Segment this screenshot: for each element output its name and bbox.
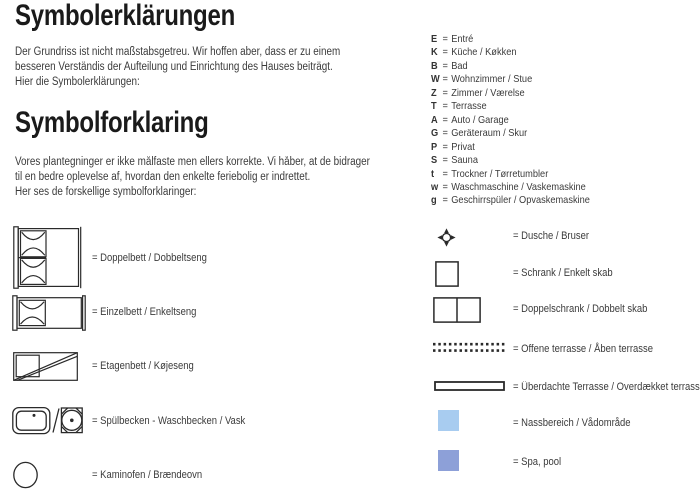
room-code-key: E — [431, 33, 442, 46]
legend-label: = Spa, pool — [513, 456, 561, 468]
text-line: til en bedre oplevelse af, hvordan den e… — [15, 170, 370, 185]
bunk-bed-icon — [13, 352, 78, 381]
cabinet-icon — [435, 261, 459, 287]
room-code-value: Bad — [451, 60, 467, 73]
room-code-row: P=Privat — [431, 141, 590, 154]
room-code-key: t — [431, 168, 442, 181]
legend-label: = Doppelschrank / Dobbelt skab — [513, 303, 647, 315]
open-terrace-icon — [433, 342, 505, 354]
equals-sign: = — [442, 141, 451, 154]
covered-terrace-icon — [434, 381, 505, 391]
wet-area-swatch — [438, 410, 459, 431]
room-code-key: w — [431, 181, 442, 194]
spa-pool-swatch — [438, 450, 459, 471]
legend-label: = Offene terrasse / Åben terrasse — [513, 343, 653, 355]
room-code-key: g — [431, 194, 442, 207]
page-title-danish: Symbolforklaring — [15, 106, 209, 140]
room-code-list: E=Entré K=Küche / Køkken B=Bad W=Wohnzim… — [431, 33, 612, 208]
room-code-key: G — [431, 127, 442, 140]
room-code-value: Küche / Køkken — [451, 46, 516, 59]
room-code-value: Sauna — [451, 154, 478, 167]
text-line: Hier die Symbolerklärungen: — [15, 75, 340, 90]
legend-label: = Nassbereich / Vådområde — [513, 417, 631, 429]
page-title-german: Symbolerklärungen — [15, 0, 235, 33]
room-code-key: W — [431, 73, 442, 86]
legend-page: Symbolerklärungen Der Grundriss ist nich… — [0, 0, 700, 500]
wood-stove-icon — [12, 461, 39, 489]
equals-sign: = — [442, 46, 451, 59]
room-code-key: K — [431, 46, 442, 59]
equals-sign: = — [442, 87, 451, 100]
room-code-key: A — [431, 114, 442, 127]
room-code-row: Z=Zimmer / Værelse — [431, 87, 590, 100]
room-code-key: B — [431, 60, 442, 73]
room-code-key: P — [431, 141, 442, 154]
room-code-row: E=Entré — [431, 33, 590, 46]
room-code-value: Auto / Garage — [451, 114, 509, 127]
legend-label: = Kaminofen / Brændeovn — [92, 469, 202, 481]
room-code-key: S — [431, 154, 442, 167]
double-cabinet-icon — [433, 297, 481, 323]
room-code-row: S=Sauna — [431, 154, 590, 167]
legend-label: = Etagenbett / Køjeseng — [92, 360, 194, 372]
room-code-value: Wohnzimmer / Stue — [451, 73, 532, 86]
equals-sign: = — [442, 154, 451, 167]
room-code-row: A=Auto / Garage — [431, 114, 590, 127]
double-bed-icon — [13, 226, 83, 289]
text-line: Vores plantegninger er ikke målfaste men… — [15, 155, 370, 170]
legend-label: = Dusche / Bruser — [513, 230, 589, 242]
legend-label: = Überdachte Terrasse / Overdækket terra… — [513, 381, 700, 393]
room-code-row: t=Trockner / Tørretumbler — [431, 168, 590, 181]
sink-washbasin-icon — [12, 406, 83, 435]
legend-label: = Spülbecken - Waschbecken / Vask — [92, 415, 245, 427]
room-code-row: W=Wohnzimmer / Stue — [431, 73, 590, 86]
equals-sign: = — [442, 168, 451, 181]
equals-sign: = — [442, 181, 451, 194]
equals-sign: = — [442, 127, 451, 140]
room-code-value: Entré — [451, 33, 473, 46]
text-line: Her ses de forskellige symbolforklaringe… — [15, 185, 370, 200]
single-bed-icon — [12, 295, 86, 331]
legend-label: = Doppelbett / Dobbeltseng — [92, 252, 207, 264]
equals-sign: = — [442, 114, 451, 127]
room-code-key: T — [431, 100, 442, 113]
legend-label: = Einzelbett / Enkeltseng — [92, 306, 196, 318]
equals-sign: = — [442, 194, 451, 207]
room-code-value: Waschmaschine / Vaskemaskine — [451, 181, 586, 194]
room-code-value: Trockner / Tørretumbler — [451, 168, 548, 181]
room-code-row: K=Küche / Køkken — [431, 46, 590, 59]
text-line: Der Grundriss ist nicht maßstabsgetreu. … — [15, 45, 340, 60]
room-code-key: Z — [431, 87, 442, 100]
text-line: besseren Verständis der Aufteilung und E… — [15, 60, 340, 75]
equals-sign: = — [442, 73, 451, 86]
room-code-value: Zimmer / Værelse — [451, 87, 524, 100]
equals-sign: = — [442, 60, 451, 73]
room-code-value: Geräteraum / Skur — [451, 127, 527, 140]
equals-sign: = — [442, 33, 451, 46]
room-code-row: T=Terrasse — [431, 100, 590, 113]
room-code-value: Privat — [451, 141, 475, 154]
room-code-value: Geschirrspüler / Opvaskemaskine — [451, 194, 590, 207]
intro-text-german: Der Grundriss ist nicht maßstabsgetreu. … — [15, 45, 393, 91]
room-code-row: G=Geräteraum / Skur — [431, 127, 590, 140]
room-code-row: g=Geschirrspüler / Opvaskemaskine — [431, 194, 590, 207]
room-code-row: w=Waschmaschine / Vaskemaskine — [431, 181, 590, 194]
room-code-value: Terrasse — [451, 100, 486, 113]
intro-text-danish: Vores plantegninger er ikke målfaste men… — [15, 155, 428, 201]
legend-label: = Schrank / Enkelt skab — [513, 267, 613, 279]
equals-sign: = — [442, 100, 451, 113]
room-code-row: B=Bad — [431, 60, 590, 73]
shower-icon — [437, 228, 456, 247]
